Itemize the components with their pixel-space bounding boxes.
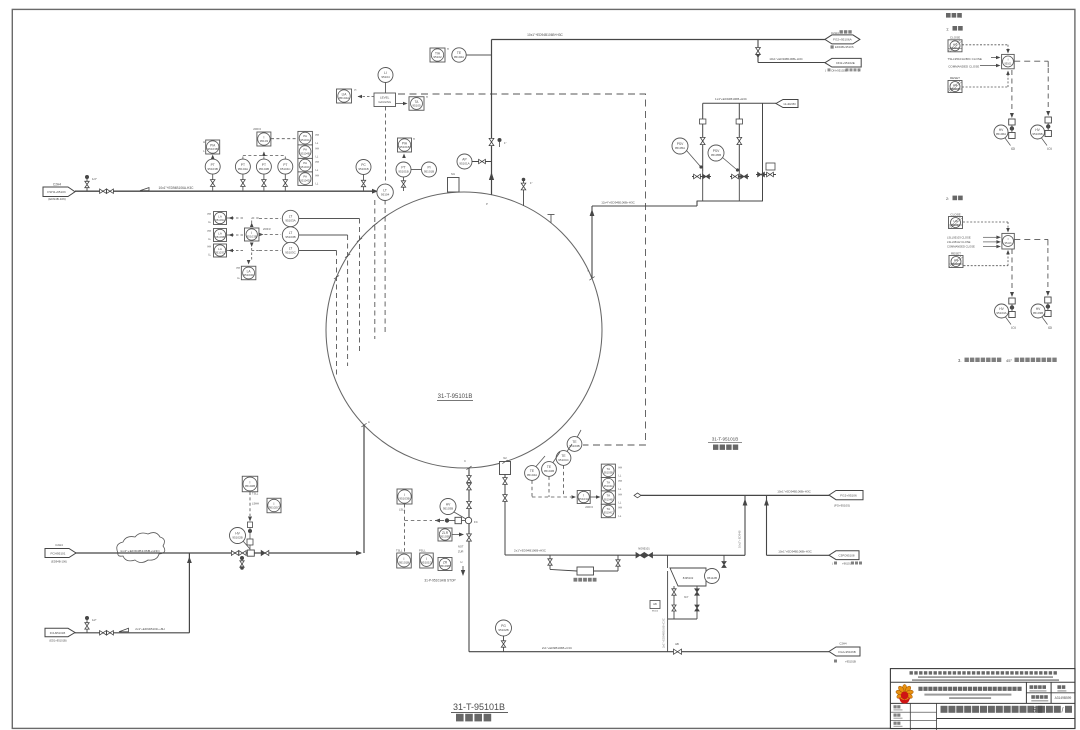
svg-text:31-T-95101B: 31-T-95101B	[712, 437, 739, 442]
svg-text:FSH2+95103: FSH2+95103	[47, 190, 66, 194]
svg-text:DN+95102E: DN+95102E	[832, 68, 847, 72]
svg-text:95104B: 95104B	[259, 167, 269, 171]
svg-text:HH: HH	[316, 134, 320, 137]
svg-text:RESET: RESET	[951, 252, 961, 256]
svg-text:95103B: 95103B	[247, 235, 257, 239]
svg-text:95101A: 95101A	[459, 162, 469, 166]
svg-text:TA: TA	[606, 480, 610, 484]
svg-text:95104A: 95104A	[604, 484, 613, 488]
svg-text:H: H	[203, 140, 205, 144]
svg-text:GAUGING: GAUGING	[378, 100, 391, 104]
svg-text:HH: HH	[208, 213, 212, 216]
svg-text:HH: HH	[316, 147, 320, 150]
svg-text:95103B: 95103B	[285, 235, 295, 239]
svg-text:(: (	[825, 68, 826, 72]
svg-text:TSLL: TSLL	[396, 549, 403, 553]
svg-text:H: H	[461, 560, 463, 564]
svg-text:95103: 95103	[260, 139, 269, 143]
svg-text:95104C: 95104C	[604, 511, 613, 515]
svg-text:95102A: 95102A	[454, 55, 464, 59]
svg-text:12x4"+ED94B106B+H3C: 12x4"+ED94B106B+H3C	[601, 201, 635, 205]
svg-text:1:: 1:	[946, 27, 949, 32]
svg-text:(ED94B-106): (ED94B-106)	[48, 197, 66, 201]
svg-text:31-T-95101B: 31-T-95101B	[453, 702, 505, 712]
svg-text:95102B: 95102B	[245, 484, 255, 488]
svg-text:TSLL95101A/B/C CLOSE: TSLL95101A/B/C CLOSE	[948, 57, 982, 61]
svg-text:95106A: 95106A	[996, 132, 1006, 136]
svg-text:HH: HH	[619, 493, 623, 496]
svg-text:1": 1"	[530, 181, 533, 185]
svg-text:95102: 95102	[652, 611, 659, 613]
svg-text:10x2"+ED94B: 10x2"+ED94B	[738, 530, 742, 548]
svg-text:95103B: 95103B	[215, 235, 225, 239]
svg-text:95103A: 95103A	[285, 219, 295, 223]
svg-text:95101B: 95101B	[398, 170, 408, 174]
svg-text:TA: TA	[606, 494, 610, 498]
svg-text:10x1"+ED94B106B+H3C: 10x1"+ED94B106B+H3C	[769, 57, 803, 61]
svg-text:PSLL: PSLL	[419, 549, 426, 553]
svg-text:95101: 95101	[1005, 63, 1013, 66]
svg-text:+95101B: +95101B	[845, 660, 856, 664]
svg-text:95101D: 95101D	[421, 561, 432, 565]
svg-text:A: A	[368, 420, 370, 424]
svg-text:2x1"+ED94B101L+8H: 2x1"+ED94B101L+8H	[135, 627, 164, 631]
svg-text:95104C: 95104C	[300, 165, 309, 169]
svg-text:(: (	[832, 562, 833, 566]
svg-text:95103D: 95103D	[243, 273, 254, 277]
svg-text:C3PO95108: C3PO95108	[839, 554, 855, 558]
svg-text:PA: PA	[303, 161, 307, 165]
svg-text:95103B: 95103B	[604, 471, 613, 475]
svg-text:95105A: 95105A	[675, 146, 685, 150]
svg-text:95105: 95105	[412, 104, 421, 108]
svg-text:C2H4: C2H4	[55, 543, 63, 547]
svg-text:95101B: 95101B	[399, 145, 409, 149]
svg-text:P: P	[486, 202, 488, 206]
svg-text:HH: HH	[316, 161, 320, 164]
svg-text:1/2": 1/2"	[92, 177, 97, 181]
svg-text:95104C: 95104C	[280, 167, 291, 171]
svg-text:95103A: 95103A	[579, 497, 589, 501]
svg-text:IOI: IOI	[1047, 147, 1051, 151]
svg-text:COMMANDED CLOSE: COMMANDED CLOSE	[947, 245, 975, 249]
svg-text:IOI: IOI	[1011, 147, 1015, 151]
svg-text:FCH95101B: FCH95101B	[50, 631, 66, 635]
svg-text:95105B: 95105B	[711, 153, 721, 157]
svg-text:(ED1+95101B): (ED1+95101B)	[49, 639, 66, 643]
svg-text:HH: HH	[237, 267, 241, 270]
svg-text:95102C: 95102C	[269, 506, 280, 510]
svg-text:8495102: 8495102	[683, 576, 694, 580]
svg-text:CLOSE: CLOSE	[950, 36, 960, 40]
svg-text:95104B: 95104B	[544, 469, 554, 473]
svg-text:2x1"+ED9B106B+C3C: 2x1"+ED9B106B+C3C	[542, 646, 573, 650]
svg-text:31-T-95101B: 31-T-95101B	[438, 394, 473, 400]
svg-text:95103C: 95103C	[215, 251, 225, 255]
svg-text:10x1"+ED94B106B+H3C: 10x1"+ED94B106B+H3C	[778, 550, 812, 554]
svg-text:95103B: 95103B	[443, 507, 453, 511]
svg-text:95103B: 95103B	[440, 564, 450, 568]
svg-text:IOI: IOI	[1011, 326, 1015, 330]
svg-text:ED94B+9510S: ED94B+9510S	[835, 45, 854, 49]
svg-text:N2: N2	[503, 456, 507, 460]
svg-text:95103B: 95103B	[399, 497, 409, 501]
svg-text:ZUR: ZUR	[458, 550, 463, 554]
svg-text:95101B: 95101B	[399, 561, 409, 565]
svg-text:95104C: 95104C	[558, 458, 569, 462]
svg-text:95101B: 95101B	[424, 170, 434, 174]
svg-text:2OF3: 2OF3	[253, 127, 261, 131]
svg-text:C: C	[464, 460, 466, 463]
svg-text:10x1"+ED94B106B+H3C: 10x1"+ED94B106B+H3C	[777, 490, 811, 494]
svg-text:95104A: 95104A	[527, 473, 537, 477]
svg-text:95104A: 95104A	[339, 96, 349, 100]
svg-text:TA: TA	[606, 467, 610, 471]
svg-text:H: H	[426, 96, 428, 99]
svg-text:95104: 95104	[381, 193, 390, 197]
svg-text:FCH95101: FCH95101	[51, 551, 66, 555]
svg-text:HH: HH	[619, 507, 623, 510]
svg-text:FG2+95106A: FG2+95106A	[833, 38, 852, 42]
svg-text:95104B: 95104B	[300, 151, 309, 155]
svg-text:95103C: 95103C	[285, 251, 296, 255]
svg-text:1x4"+ED94B106B+H3C: 1x4"+ED94B106B+H3C	[120, 549, 160, 553]
svg-text:95101B: 95101B	[358, 167, 368, 171]
svg-text:HH: HH	[619, 467, 623, 470]
svg-text:10x1"+ED94B106A-H3C: 10x1"+ED94B106A-H3C	[159, 186, 195, 190]
svg-text:1": 1"	[504, 141, 507, 145]
svg-text:95104A: 95104A	[238, 167, 248, 171]
svg-text::: :	[961, 14, 962, 19]
svg-text:NOT: NOT	[458, 545, 464, 549]
svg-text:95104A: 95104A	[300, 138, 309, 142]
svg-text:FG2+95106: FG2+95106	[840, 493, 857, 497]
svg-text:95103B: 95103B	[208, 147, 218, 151]
svg-text:PA: PA	[303, 148, 307, 152]
svg-text:1/2": 1/2"	[92, 618, 97, 622]
svg-text:HH: HH	[316, 174, 320, 177]
svg-text:LSHH: LSHH	[252, 502, 259, 506]
svg-text:95104: 95104	[381, 75, 390, 79]
svg-text:95103A: 95103A	[215, 218, 225, 222]
svg-text:LEVEL: LEVEL	[380, 96, 390, 100]
svg-text:95106B: 95106B	[1032, 132, 1042, 136]
svg-text:FC: FC	[474, 520, 478, 524]
svg-text:95104B: 95104B	[604, 497, 613, 501]
svg-text:(FG+9510S): (FG+9510S)	[834, 504, 850, 508]
svg-text:C2H4: C2H4	[831, 31, 839, 35]
svg-text:TSLL: TSLL	[252, 492, 259, 496]
svg-text:H: H	[413, 138, 415, 141]
svg-text:5: 5	[1033, 708, 1037, 715]
svg-text:C2H4: C2H4	[839, 642, 847, 646]
svg-text:LSLL95103 CLOSE: LSLL95103 CLOSE	[947, 236, 971, 240]
svg-text:HB: HB	[653, 602, 657, 606]
svg-text:HH: HH	[619, 480, 623, 483]
svg-text:95104D: 95104D	[300, 178, 309, 182]
svg-text:10x1"+ED94B106B+H3C: 10x1"+ED94B106B+H3C	[527, 33, 563, 37]
svg-text:45°: 45°	[1006, 358, 1012, 363]
svg-text:PA: PA	[303, 175, 307, 179]
svg-text:FG2+95106B: FG2+95106B	[838, 650, 855, 654]
svg-text:CLOSE: CLOSE	[950, 213, 960, 217]
svg-text:2x1"+ED94B106B+H3C: 2x1"+ED94B106B+H3C	[514, 549, 547, 553]
svg-text:2OF3: 2OF3	[263, 227, 271, 231]
svg-text:IOI: IOI	[1048, 326, 1052, 330]
svg-text:3/4": 3/4"	[684, 596, 688, 599]
svg-text:1x4"+ED94B106B+H3C: 1x4"+ED94B106B+H3C	[715, 97, 748, 101]
svg-text:H: H	[355, 89, 357, 92]
svg-text:95103A: 95103A	[996, 311, 1006, 315]
svg-text:): )	[859, 68, 860, 72]
svg-text:H: H	[447, 48, 449, 51]
svg-text:95102B: 95102B	[498, 628, 508, 632]
svg-text:2OF3: 2OF3	[585, 505, 593, 509]
svg-text:TA: TA	[606, 507, 610, 511]
svg-text:95103B: 95103B	[208, 167, 218, 171]
svg-text:2x1"+ED94B106B+C3C: 2x1"+ED94B106B+C3C	[662, 618, 666, 648]
svg-text:2:: 2:	[946, 196, 949, 201]
svg-text:95103B: 95103B	[440, 535, 450, 539]
svg-text:95103B: 95103B	[1033, 311, 1043, 315]
svg-text:HB: HB	[675, 642, 679, 646]
svg-text:PA: PA	[303, 134, 307, 138]
svg-text:M1: M1	[451, 172, 455, 176]
svg-text:HH: HH	[208, 246, 212, 249]
svg-text:(ED94B-106): (ED94B-106)	[51, 560, 67, 564]
svg-text:95102: 95102	[433, 55, 442, 59]
svg-text:C2H4: C2H4	[53, 183, 61, 187]
svg-text:31-P-95101A/B STOP: 31-P-95101A/B STOP	[424, 579, 455, 583]
svg-text:A3149B599: A3149B599	[1055, 696, 1072, 700]
svg-text:95112B: 95112B	[707, 576, 717, 580]
svg-text:RESET: RESET	[950, 76, 960, 80]
svg-text:NO95101: NO95101	[638, 547, 650, 551]
svg-text:COMMANDED CLOSE: COMMANDED CLOSE	[948, 65, 979, 69]
svg-text:/: /	[1062, 708, 1064, 715]
svg-text:+96101: +96101	[842, 562, 852, 566]
svg-text:LSLL95112 CLOSE: LSLL95112 CLOSE	[947, 240, 971, 244]
svg-text:3.: 3.	[958, 358, 962, 363]
svg-text:12+9H950: 12+9H950	[783, 102, 796, 106]
svg-text:95113: 95113	[1005, 242, 1012, 245]
svg-text:DN2+95102E: DN2+95102E	[836, 61, 855, 65]
svg-text:95102B: 95102B	[232, 536, 242, 540]
svg-text:HH: HH	[208, 230, 212, 233]
